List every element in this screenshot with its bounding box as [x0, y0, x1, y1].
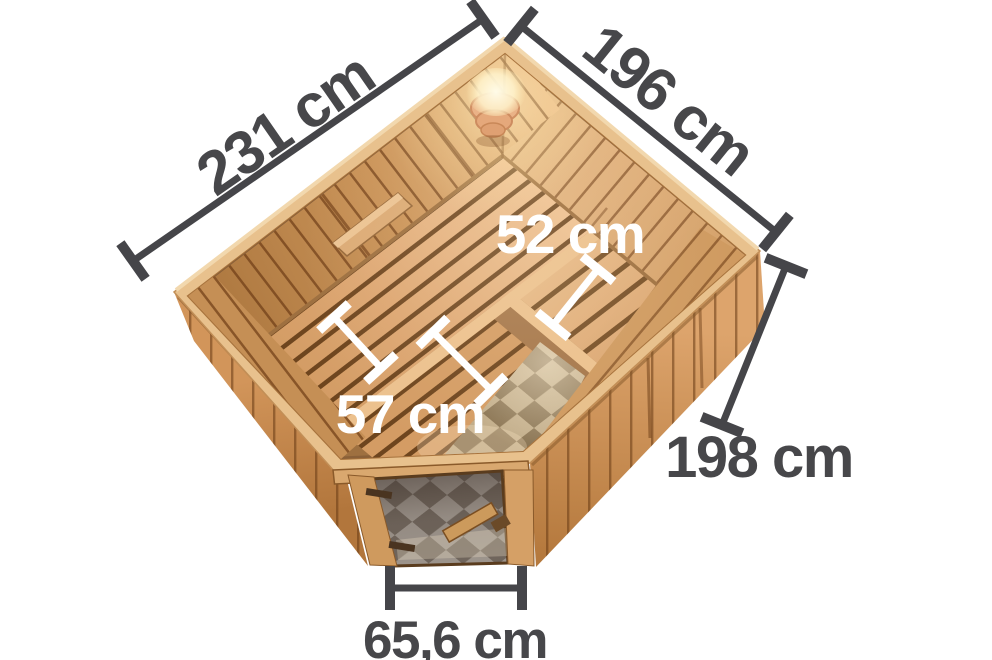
svg-text:52 cm: 52 cm	[496, 203, 644, 265]
svg-text:57 cm: 57 cm	[336, 383, 484, 445]
svg-text:65,6 cm: 65,6 cm	[363, 611, 547, 660]
svg-text:198 cm: 198 cm	[665, 425, 853, 490]
